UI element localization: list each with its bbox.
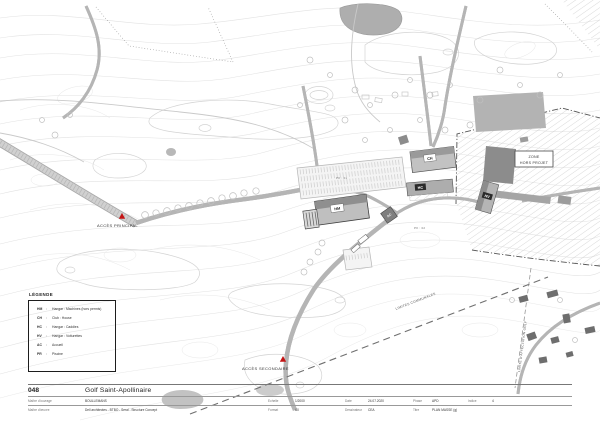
project-title: Golf Saint-Apollinaire (85, 387, 151, 394)
title-block: 048 Golf Saint-Apollinaire Maître d'ouvr… (28, 384, 572, 414)
access-main-label: ACCÈS PRINCIPAL (97, 223, 138, 228)
building-hc: HC (406, 179, 453, 201)
client-label: Maître d'ouvrage (28, 399, 85, 403)
date-value: 24.07.2020 (368, 399, 413, 403)
legend-code: CH (37, 316, 46, 325)
pond (340, 4, 402, 35)
building-hc-label: HC (418, 186, 424, 190)
small-pond (166, 148, 176, 156)
legend-row-pr: PR : Piscine (37, 352, 115, 361)
zone-label-line1: ZONE (529, 155, 540, 159)
zone-hatch-corner (562, 0, 600, 50)
legend-code: AC (37, 343, 46, 352)
parking-pk01-label: PK : 01 (336, 176, 347, 180)
zone-hors-projet (456, 0, 600, 266)
drafter-label: Dessinateur (345, 408, 368, 412)
building-ac: AC (381, 207, 398, 224)
doc-title-value: PLAN MASSE (g) (432, 408, 468, 412)
building-ch-label: CH (427, 156, 433, 161)
building-hm: HM (302, 194, 370, 229)
legend-row-hc: HC : Hangar : Caddies (37, 325, 115, 334)
plan-sheet: PK : 01 PK : 02 HM CH (0, 0, 600, 424)
phase-label: Phase (413, 399, 432, 403)
legend-label: Hangar : Voiturettes (52, 334, 82, 343)
legend-label: Accueil (52, 343, 63, 352)
legend-row-ch: CH : Club : House (37, 316, 115, 325)
scale-label: Echelle (268, 399, 295, 403)
legend-code: PR (37, 352, 46, 361)
doc-title-label: Titre (413, 408, 432, 412)
legend-code: HM (37, 307, 46, 316)
architect-value: Dell architectes - BTBO - Seral - Struct… (85, 408, 268, 412)
phase-value: APD (432, 399, 468, 403)
legend-row-ac: AC : Accueil (37, 343, 115, 352)
title-row: 048 Golf Saint-Apollinaire (28, 384, 572, 396)
legend-box: HM : Hangar : Machines (hors permis) CH … (28, 300, 116, 372)
drafter-value: CEA (368, 408, 413, 412)
legend-label: Club : House (52, 316, 72, 325)
legend-code: HC (37, 325, 46, 334)
building-hm-label: HM (334, 207, 340, 212)
info-row-2: Maître d'œuvre Dell architectes - BTBO -… (28, 405, 572, 414)
scale-value: 1/2000 (295, 399, 345, 403)
legend-title: LÉGENDE (29, 292, 116, 297)
legend-code: HV (37, 334, 46, 343)
zone-label-line2: HORS PROJET (520, 161, 549, 165)
legend-label: Hangar : Machines (hors permis) (52, 307, 101, 316)
legend-label: Piscine (52, 352, 63, 361)
architect-label: Maître d'œuvre (28, 408, 85, 412)
info-row-1: Maître d'ouvrage BOULLEMANS Echelle 1/20… (28, 396, 572, 405)
index-label: Indice (468, 399, 492, 403)
parking-pk01: PK : 01 (297, 157, 406, 199)
access-secondary-label: ACCÈS SECONDAIRE (242, 366, 289, 371)
legend-row-hm: HM : Hangar : Machines (hors permis) (37, 307, 115, 316)
communal-limit-label: LIMITES COMMUNALES (395, 292, 437, 311)
format-label: Format (268, 408, 295, 412)
index-value: 4 (492, 399, 572, 403)
format-value: A0 (295, 408, 345, 412)
date-label: Date (345, 399, 368, 403)
legend-label: Hangar : Caddies (52, 325, 78, 334)
zone-label: ZONE HORS PROJET (515, 151, 553, 167)
sheet-number: 048 (28, 387, 85, 394)
legend: LÉGENDE HM : Hangar : Machines (hors per… (28, 292, 116, 372)
parking-pk02-label: PK : 02 (414, 226, 425, 230)
building-ch: CH (410, 146, 456, 172)
client-value: BOULLEMANS (85, 399, 268, 403)
legend-row-hv: HV : Hangar : Voiturettes (37, 334, 115, 343)
